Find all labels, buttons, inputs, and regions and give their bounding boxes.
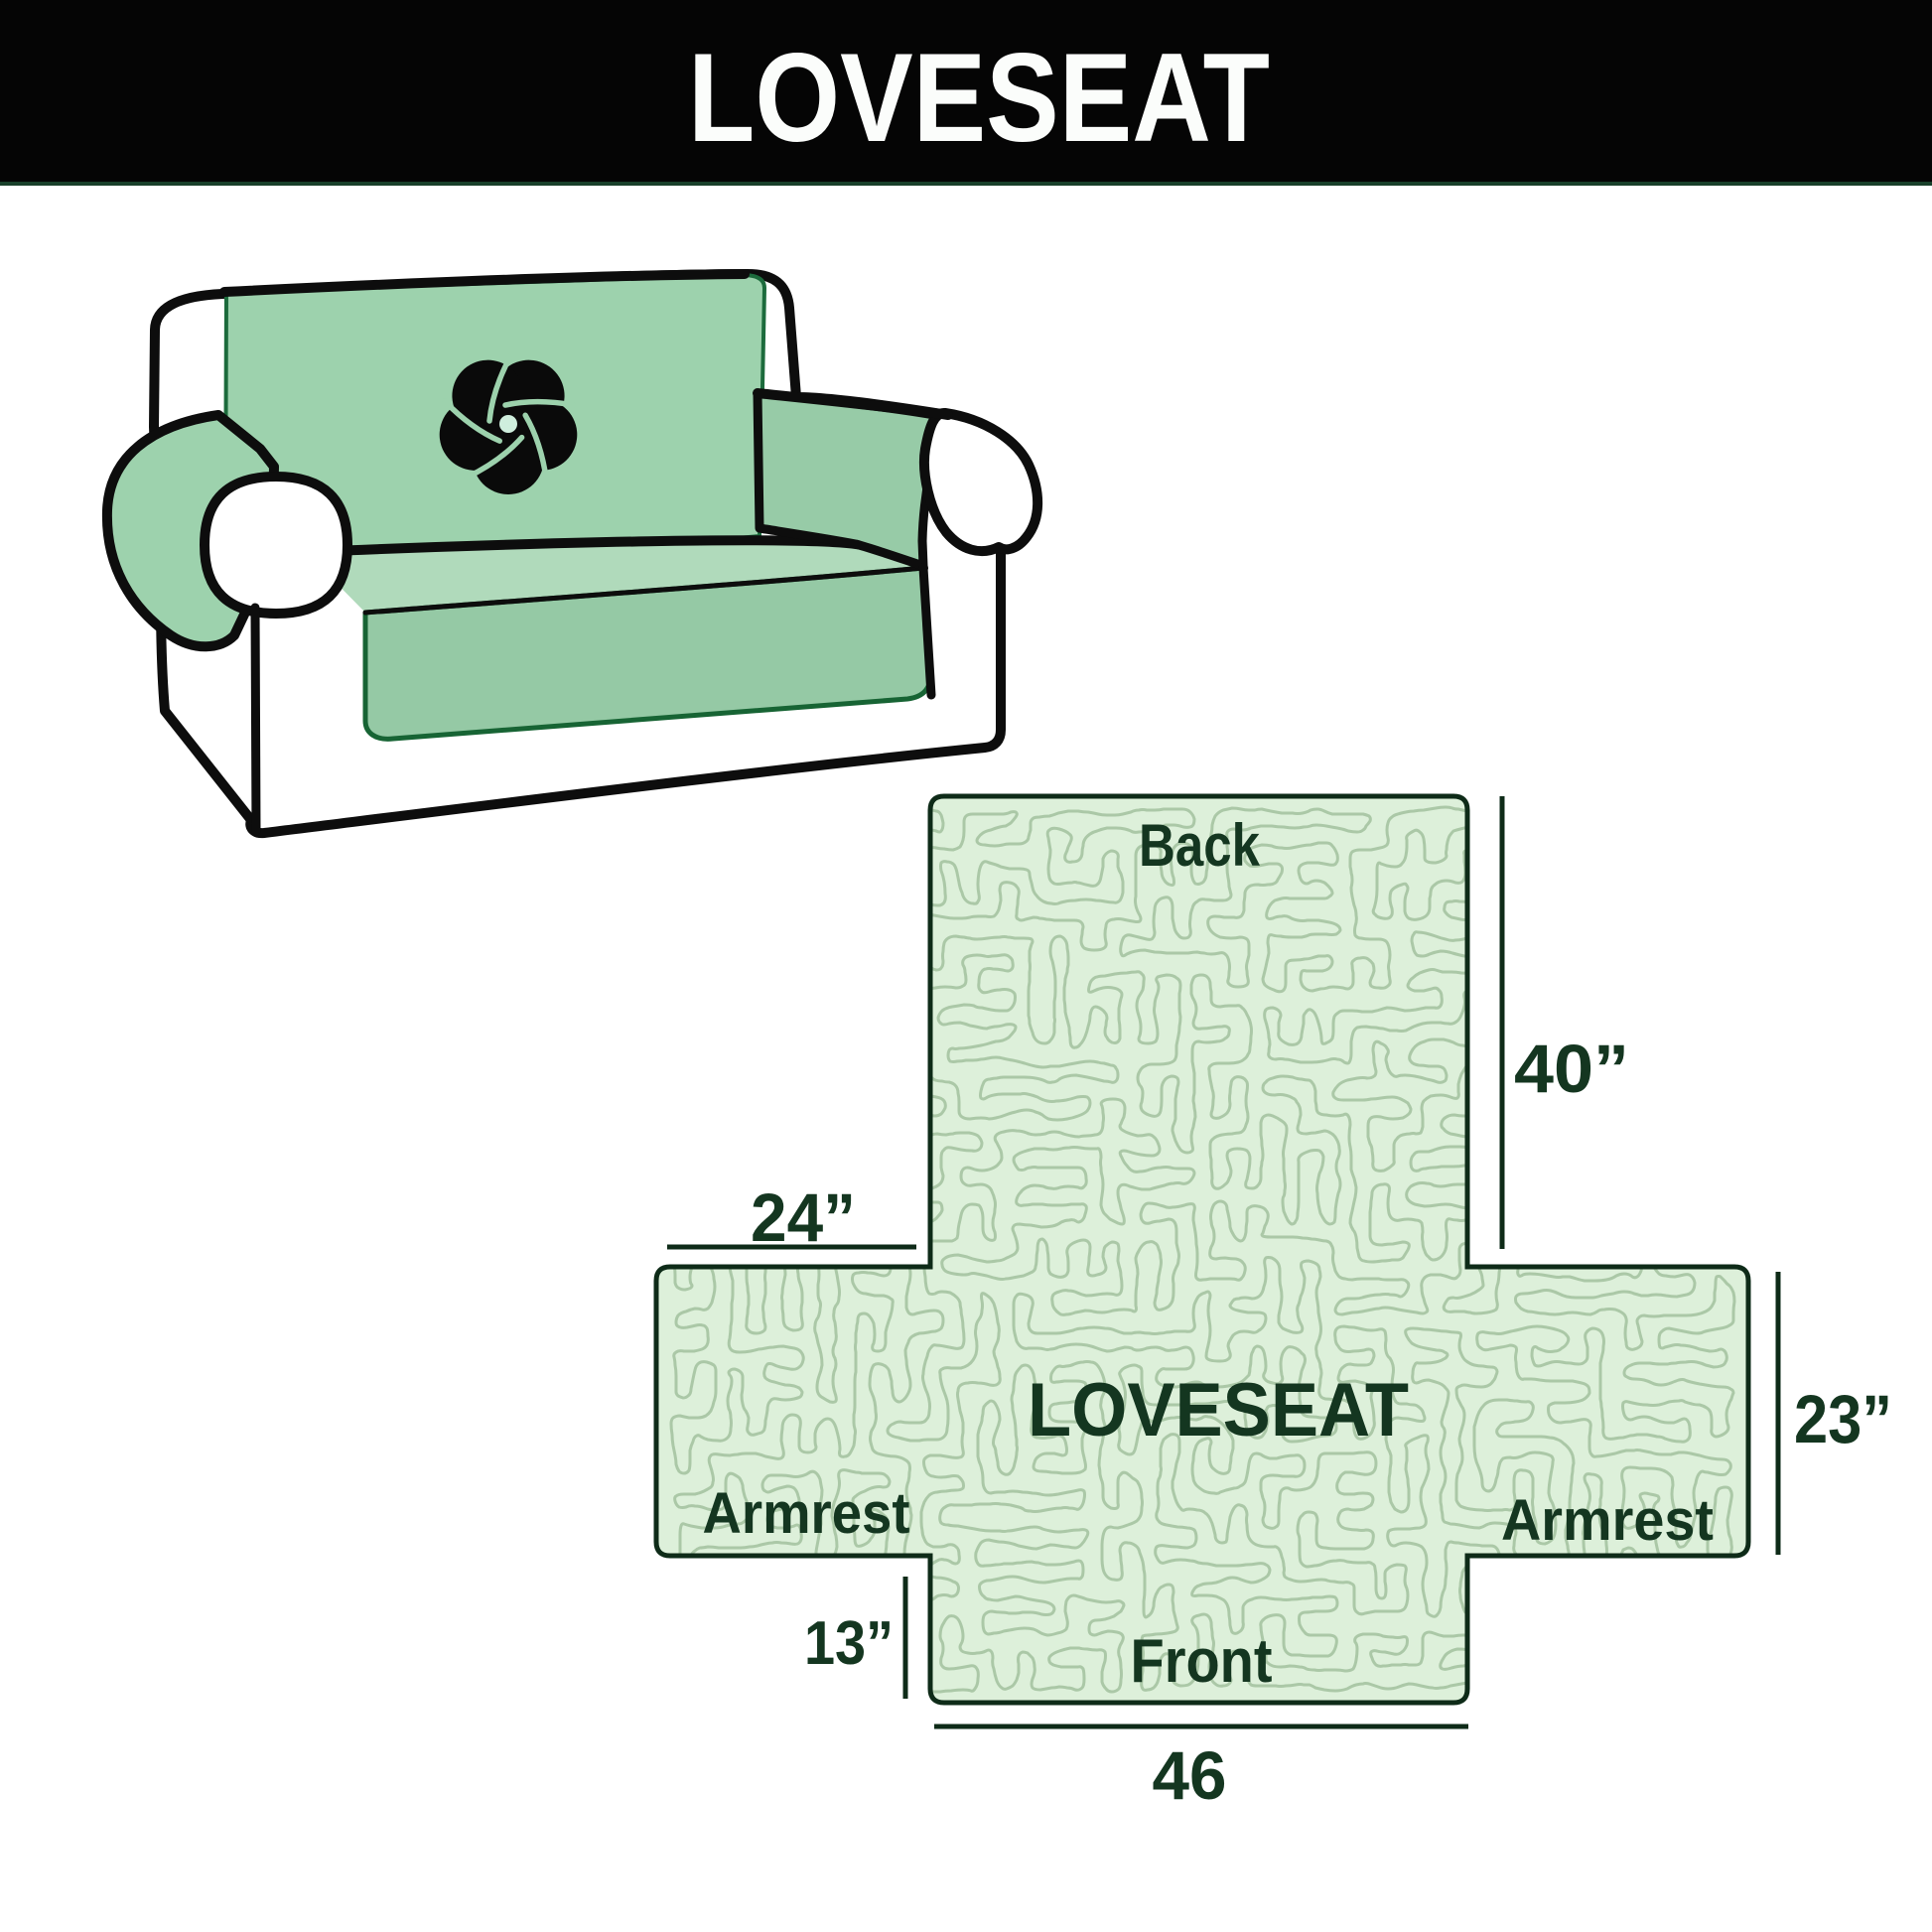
- svg-text:Armrest: Armrest: [1501, 1488, 1714, 1553]
- svg-text:Armrest: Armrest: [703, 1481, 910, 1546]
- svg-text:Front: Front: [1131, 1627, 1273, 1696]
- svg-text:LOVESEAT: LOVESEAT: [1028, 1368, 1409, 1452]
- svg-text:46: 46: [1153, 1737, 1227, 1814]
- svg-text:40”: 40”: [1514, 1031, 1629, 1107]
- svg-text:Back: Back: [1139, 812, 1261, 879]
- svg-text:LOVESEAT: LOVESEAT: [688, 27, 1270, 168]
- svg-text:24”: 24”: [751, 1179, 856, 1256]
- svg-text:23”: 23”: [1794, 1381, 1892, 1457]
- svg-text:13”: 13”: [804, 1609, 894, 1678]
